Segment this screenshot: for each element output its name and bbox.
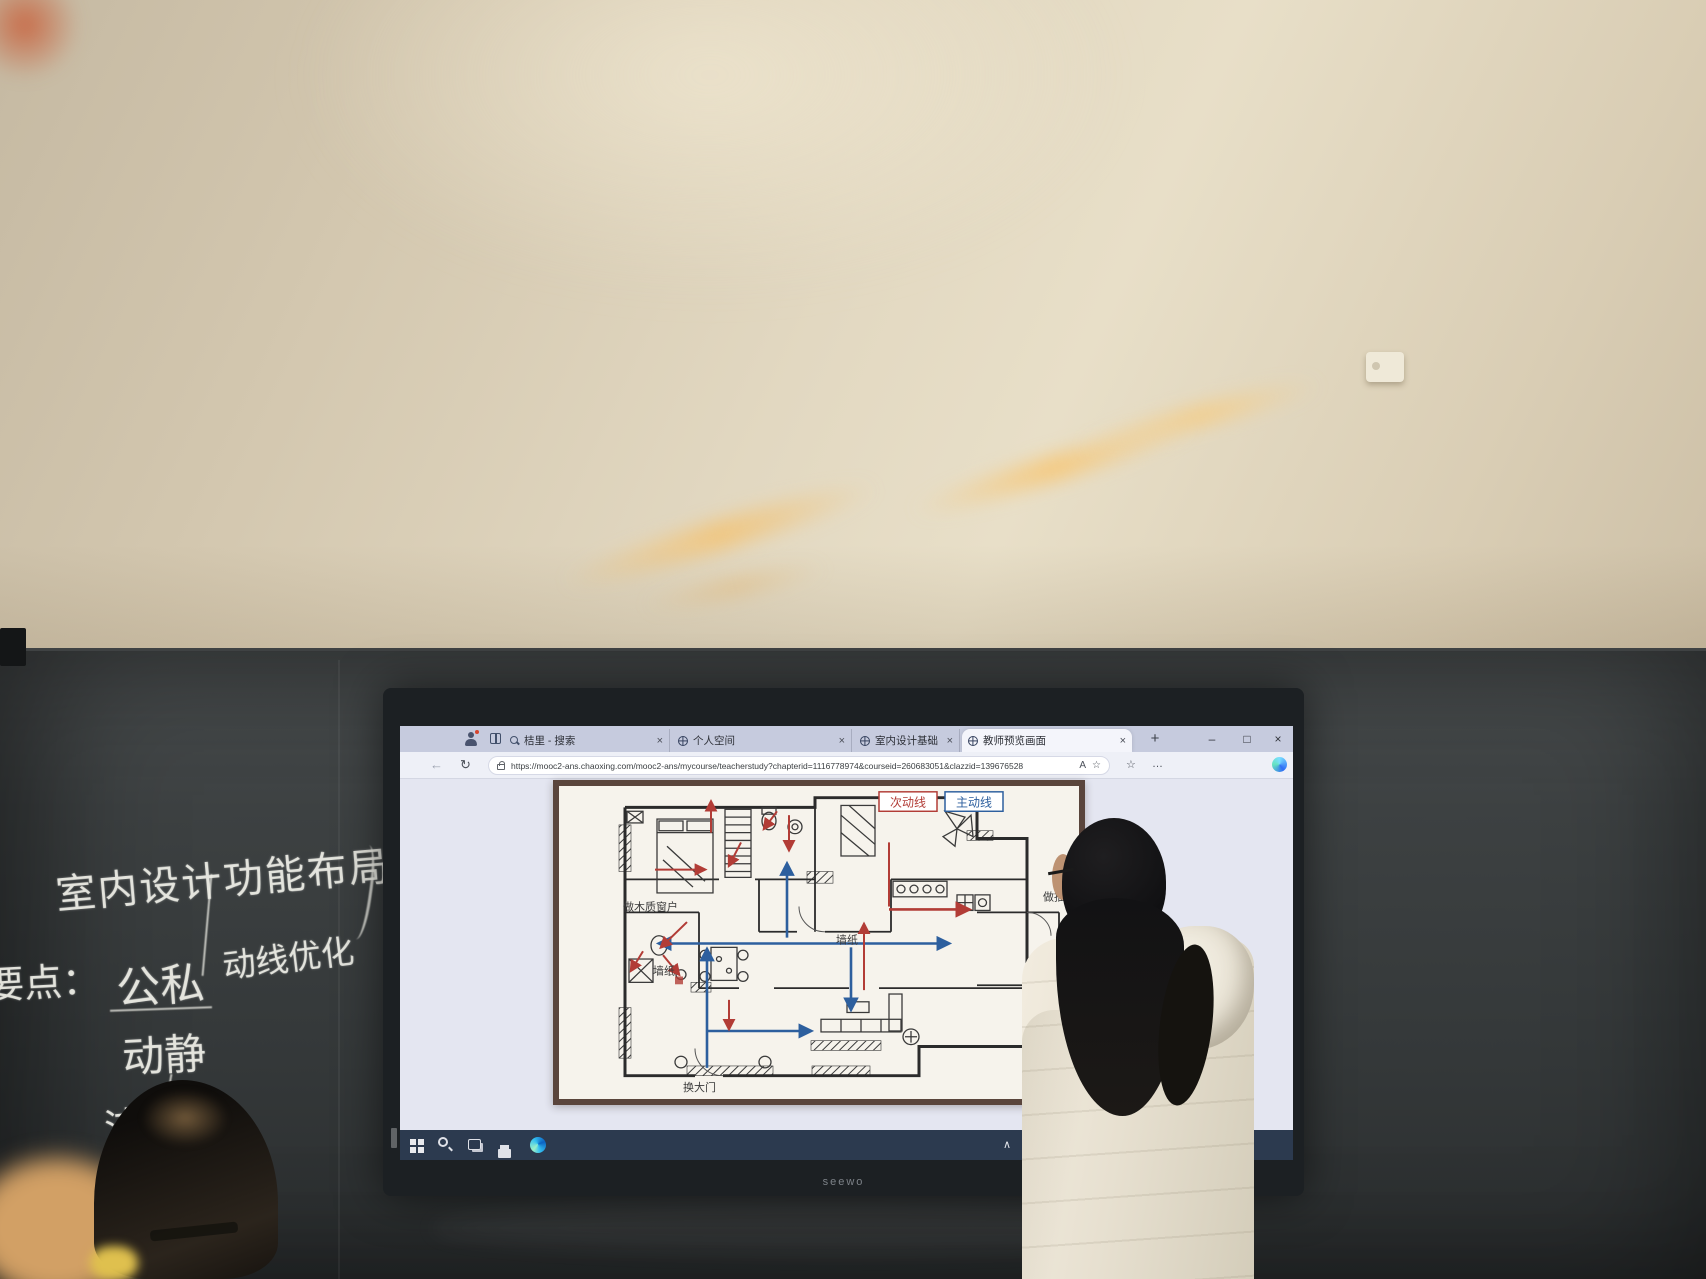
collections-icon[interactable]: ☆: [1126, 758, 1136, 771]
edge-icon[interactable]: [530, 1137, 546, 1153]
ceiling: [0, 0, 1706, 665]
chalk-points-heading: 要点：: [0, 949, 101, 1010]
sunlight-streak: [1076, 373, 1323, 459]
maximize-button[interactable]: □: [1232, 726, 1262, 752]
corner-light: [0, 0, 80, 80]
printer-icon[interactable]: [498, 1149, 511, 1158]
globe-icon: [968, 736, 978, 746]
wall-speaker: [0, 628, 26, 666]
tab-personal-space[interactable]: 个人空间 ×: [672, 729, 852, 752]
address-bar[interactable]: https://mooc2-ans.chaoxing.com/mooc2-ans…: [488, 756, 1110, 775]
tab-title: 桔里 - 搜索: [524, 733, 652, 748]
start-icon[interactable]: [410, 1139, 416, 1145]
profile-notification-dot: [475, 730, 479, 734]
refresh-icon[interactable]: ↻: [460, 757, 471, 773]
more-menu-icon[interactable]: …: [1152, 758, 1163, 770]
browser-tab-bar: 桔里 - 搜索 × 个人空间 × 室内设计基础 × 教师预览画面 ×: [400, 726, 1293, 752]
close-window-button[interactable]: ×: [1263, 726, 1293, 752]
new-tab-button[interactable]: +: [1145, 729, 1165, 749]
taskbar-search-icon[interactable]: [438, 1137, 448, 1147]
tray-chevron-icon[interactable]: ∧: [1003, 1138, 1011, 1151]
foreground-yellow-object: [90, 1246, 138, 1279]
minimize-button[interactable]: –: [1197, 726, 1227, 752]
label-wallpaper-right: 墙纸: [836, 933, 858, 947]
workspaces-icon[interactable]: [490, 733, 501, 744]
interior-walls: [625, 807, 1059, 988]
tab-title: 教师预览画面: [983, 733, 1115, 748]
task-view-icon[interactable]: [468, 1139, 481, 1150]
lock-icon: [497, 764, 505, 770]
classroom-photo: 室内设计功能布局 动线优化 要点： 公私 动静 洁污 桔里 - 搜索 × 个人空…: [0, 0, 1706, 1279]
student-hair-highlight: [142, 1090, 228, 1146]
tab-interior-design-basics[interactable]: 室内设计基础 ×: [854, 729, 960, 752]
favorite-star-icon[interactable]: ☆: [1092, 760, 1101, 771]
chalk-point-2: 动静: [120, 1020, 207, 1085]
ceiling-sensor-box: [1366, 352, 1404, 382]
close-icon[interactable]: ×: [947, 735, 953, 747]
close-icon[interactable]: ×: [839, 735, 845, 747]
bezel-sticker: [391, 1128, 397, 1148]
tab-title: 室内设计基础: [875, 733, 942, 748]
copilot-icon[interactable]: [1272, 757, 1287, 772]
floor-plan-svg: 次动线 主动线 做木质窗户 墙纸 墙纸 做抽屉 换大门: [559, 786, 1079, 1099]
floorplan-slide: 次动线 主动线 做木质窗户 墙纸 墙纸 做抽屉 换大门: [553, 780, 1085, 1105]
close-icon[interactable]: ×: [1120, 735, 1126, 747]
wall-shadow-band: [0, 545, 1706, 665]
browser-toolbar: ← ↻ https://mooc2-ans.chaoxing.com/mooc2…: [400, 752, 1293, 779]
tab-title: 个人空间: [693, 733, 834, 748]
tab-teacher-preview[interactable]: 教师预览画面 ×: [962, 729, 1132, 752]
close-icon[interactable]: ×: [657, 735, 663, 747]
legend-label-main: 主动线: [956, 796, 992, 810]
furniture: [627, 805, 990, 1067]
legend-label-secondary: 次动线: [890, 796, 926, 810]
search-icon: [510, 736, 519, 745]
globe-icon: [860, 736, 870, 746]
ceiling-light-glow: [300, 0, 1120, 290]
label-change-door: 换大门: [683, 1080, 716, 1094]
read-aloud-icon[interactable]: A: [1079, 760, 1086, 771]
back-icon[interactable]: ←: [430, 757, 443, 772]
globe-icon: [678, 736, 688, 746]
url-text[interactable]: https://mooc2-ans.chaoxing.com/mooc2-ans…: [511, 761, 1073, 771]
legend: 次动线 主动线: [879, 792, 1003, 811]
tab-search[interactable]: 桔里 - 搜索 ×: [504, 729, 670, 752]
label-wallpaper-left: 墙纸: [653, 964, 675, 978]
label-wooden-window: 做木质窗户: [623, 900, 678, 914]
profile-avatar-icon[interactable]: [464, 732, 478, 746]
hatched-walls: [619, 825, 993, 1076]
